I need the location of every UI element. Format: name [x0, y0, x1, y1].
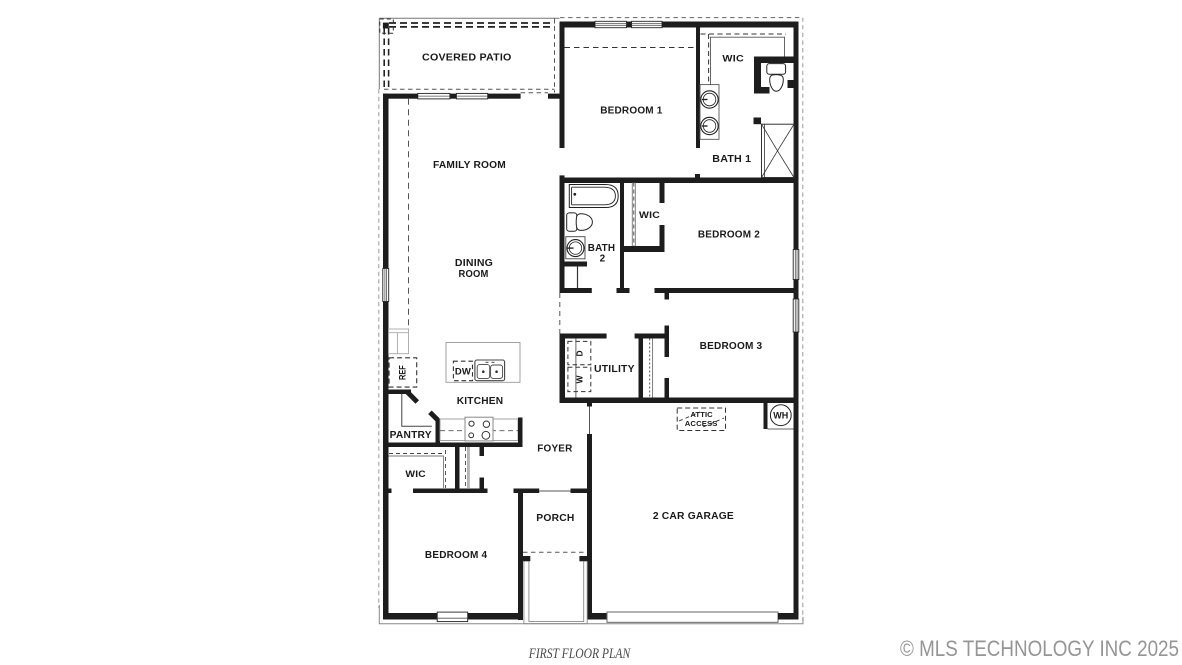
svg-text:W: W: [574, 375, 584, 384]
svg-text:WIC: WIC: [405, 469, 426, 480]
svg-text:FOYER: FOYER: [537, 443, 573, 454]
svg-text:ROOM: ROOM: [459, 269, 489, 280]
svg-text:BEDROOM 3: BEDROOM 3: [700, 341, 763, 352]
svg-text:D: D: [574, 350, 584, 356]
svg-text:BEDROOM 2: BEDROOM 2: [698, 230, 760, 241]
svg-text:© MLS TECHNOLOGY INC 2025: © MLS TECHNOLOGY INC 2025: [900, 636, 1179, 661]
svg-text:BATH 1: BATH 1: [712, 154, 751, 165]
svg-text:COVERED PATIO: COVERED PATIO: [422, 52, 512, 63]
svg-text:WIC: WIC: [639, 210, 660, 221]
svg-text:ACCESS: ACCESS: [685, 419, 718, 428]
svg-text:DW: DW: [455, 367, 471, 378]
svg-text:UTILITY: UTILITY: [594, 364, 635, 375]
svg-text:BEDROOM 4: BEDROOM 4: [425, 550, 488, 561]
svg-text:ATTIC: ATTIC: [690, 410, 713, 419]
svg-text:REF: REF: [398, 365, 408, 380]
svg-text:PANTRY: PANTRY: [390, 430, 432, 441]
svg-text:BEDROOM 1: BEDROOM 1: [600, 106, 663, 117]
svg-text:DINING: DINING: [455, 258, 493, 269]
svg-text:WIC: WIC: [722, 54, 744, 65]
svg-text:2 CAR GARAGE: 2 CAR GARAGE: [653, 511, 734, 522]
svg-text:WH: WH: [773, 411, 788, 421]
svg-text:2: 2: [600, 253, 606, 264]
svg-text:KITCHEN: KITCHEN: [457, 396, 504, 407]
svg-text:PORCH: PORCH: [536, 513, 574, 524]
svg-text:FAMILY ROOM: FAMILY ROOM: [433, 160, 506, 171]
svg-text:FIRST FLOOR PLAN: FIRST FLOOR PLAN: [528, 646, 631, 662]
